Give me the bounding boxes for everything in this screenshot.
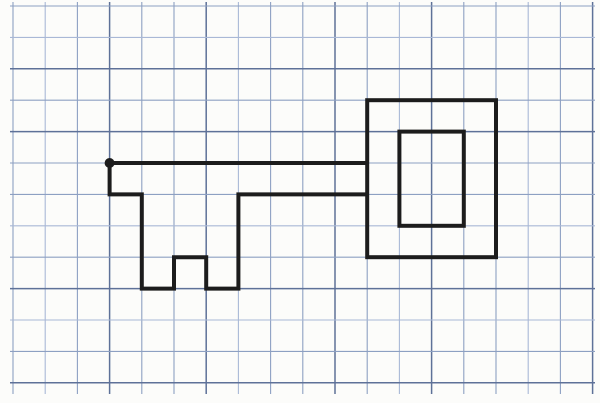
graph-paper-page — [0, 0, 600, 403]
key-figure-on-grid — [0, 0, 600, 403]
start-point-dot — [105, 158, 115, 168]
paper-background — [0, 0, 600, 403]
